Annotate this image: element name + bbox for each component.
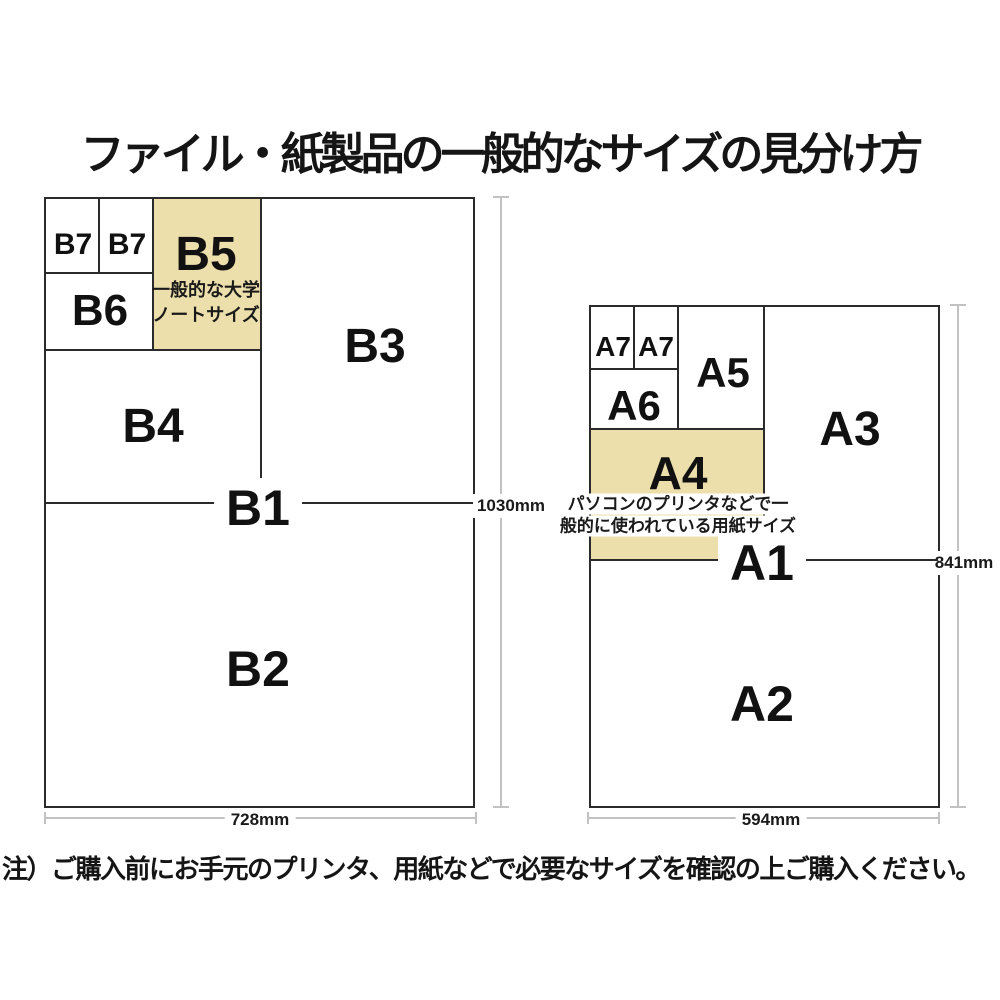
- a7-left-label: A7: [595, 333, 631, 361]
- b-width-label: 728mm: [225, 808, 296, 832]
- b5-label: B5: [175, 231, 236, 279]
- b5-caption-line1: 一般的な大学: [152, 281, 260, 299]
- a-width-dim-cap-right: [938, 812, 940, 824]
- a-height-dim-cap-top: [950, 304, 966, 306]
- b6-label: B6: [72, 289, 128, 333]
- a7-bottom-line: [591, 368, 679, 370]
- b5-caption-line2: ノートサイズ: [152, 306, 259, 324]
- b-height-dim-cap-top: [493, 196, 509, 198]
- b4-label: B4: [122, 403, 183, 451]
- b-width-dim-cap-right: [475, 812, 477, 824]
- a6-label: A6: [607, 385, 661, 427]
- a7-divider-line: [633, 307, 635, 369]
- b7-right-label: B7: [108, 230, 146, 260]
- b-height-label: 1030mm: [471, 494, 551, 518]
- page-title: ファイル・紙製品の一般的なサイズの見分け方: [0, 118, 1000, 182]
- b6-b5-divider-line: [152, 199, 154, 351]
- a1-label: A1: [718, 533, 806, 593]
- a3-label: A3: [819, 406, 880, 454]
- b-height-dim-cap-bottom: [493, 806, 509, 808]
- b2-label: B2: [226, 644, 290, 694]
- a4-caption-line1: パソコンのプリンタなどで一: [565, 494, 792, 515]
- b3-label: B3: [344, 323, 405, 371]
- b7-divider-line: [98, 199, 100, 273]
- a-width-label: 594mm: [736, 808, 807, 832]
- b4-b3-divider-line: [260, 199, 262, 503]
- b7-bottom-line: [46, 272, 154, 274]
- b-series-diagram: B7 B7 B6 B5 一般的な大学 ノートサイズ B4 B3 B1 B2: [44, 197, 475, 808]
- a2-label: A2: [730, 679, 794, 729]
- b6-bottom-line: [46, 349, 262, 351]
- a-height-label: 841mm: [933, 551, 996, 575]
- b-width-dim-cap-left: [44, 812, 46, 824]
- a-height-dim-cap-bottom: [950, 806, 966, 808]
- a-series-diagram: A7 A7 A6 A5 A4 パソコンのプリンタなどで一 般的に使われている用紙…: [589, 305, 940, 808]
- a4-label: A4: [649, 450, 708, 496]
- a7-right-label: A7: [638, 333, 674, 361]
- footnote: 注）ご購入前にお手元のプリンタ、用紙などで必要なサイズを確認の上ご購入ください。: [2, 849, 980, 886]
- a-width-dim-cap-left: [587, 812, 589, 824]
- b1-label: B1: [214, 478, 302, 538]
- a5-label: A5: [696, 352, 750, 394]
- b7-left-label: B7: [54, 230, 92, 260]
